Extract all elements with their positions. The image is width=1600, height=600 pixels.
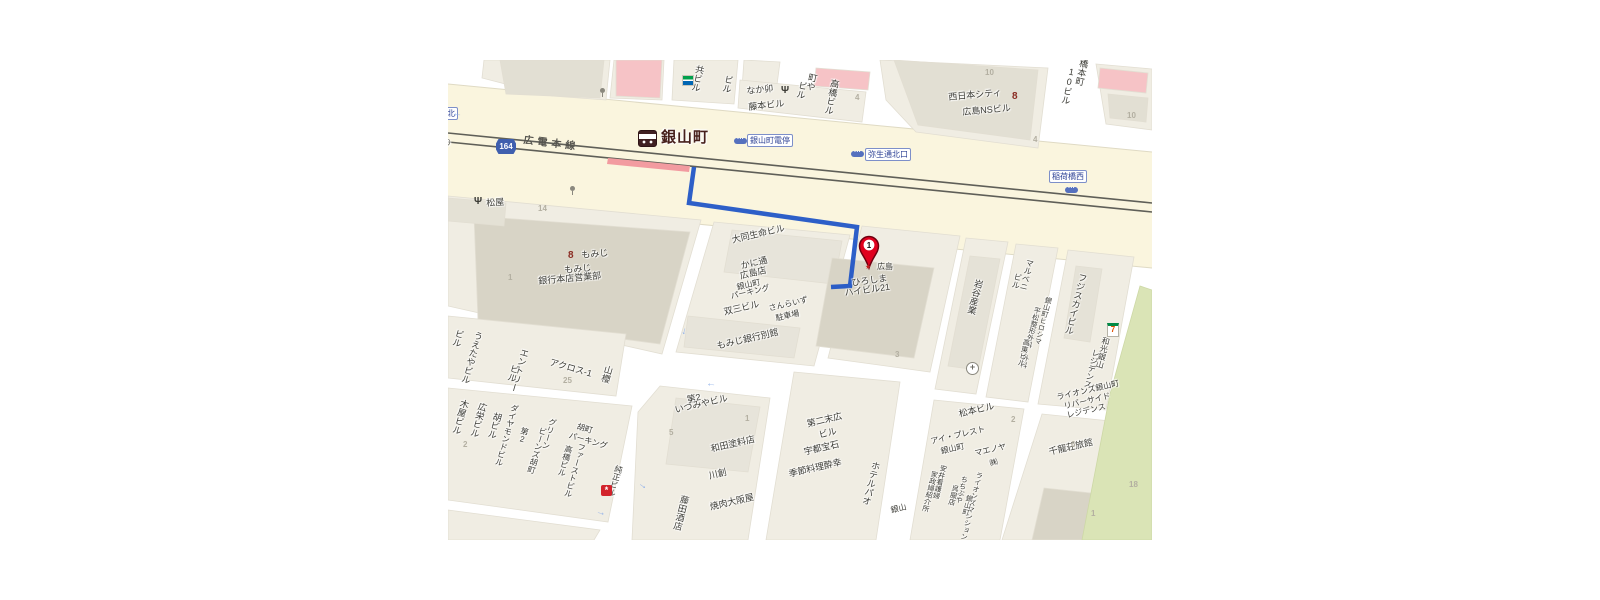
map-label: 164	[496, 139, 516, 154]
restaurant-icon: Ψ	[781, 85, 789, 96]
map-label: 松本ビル	[958, 402, 995, 419]
map-label: もみじ	[581, 249, 609, 261]
hospital-icon: +	[966, 362, 979, 375]
map-label: 広島NSビル	[962, 104, 1011, 118]
map-label: ㈱	[989, 458, 999, 468]
map-label: マエノヤ	[974, 443, 1007, 458]
map-label: 広栄ビル	[468, 401, 487, 438]
station-icon	[638, 130, 657, 147]
signal-icon	[570, 186, 575, 191]
map-label: 岩谷産業	[965, 278, 983, 315]
arrow-icon: →	[595, 506, 608, 519]
map-label: ビル	[450, 328, 464, 348]
map-label: 藤本ビル	[748, 99, 785, 112]
company-icon: ★	[865, 263, 871, 271]
map-label: 松屋	[486, 198, 505, 209]
map-label: 5	[669, 429, 673, 437]
map-label: 1	[1091, 510, 1095, 518]
map-label: 双三ビル	[723, 300, 760, 317]
map-label: 西日本シティ	[948, 88, 1002, 102]
bank-icon: 8	[1012, 91, 1018, 102]
map-label: 3	[895, 351, 899, 359]
map-label: ビル	[818, 427, 838, 440]
map-label: 4	[855, 94, 859, 102]
restaurant-icon: Ψ	[474, 196, 482, 207]
redpoi-icon: *	[601, 485, 612, 496]
tram-icon: ···	[734, 138, 747, 144]
map-label: 山櫻	[599, 364, 613, 384]
map-label: 大同生命ビル	[731, 224, 786, 245]
map-label: 10ビル	[1059, 66, 1076, 105]
map-label: 駐車場	[775, 310, 800, 324]
map-label: 焼肉大阪屋	[709, 493, 755, 512]
bank-icon: 8	[568, 250, 574, 261]
arrow-icon: →	[706, 380, 717, 392]
map-label: 14	[538, 205, 547, 213]
map-label: 10	[985, 69, 994, 77]
map-labels-layer: 共ビルビルなか卯藤本ビル町やビル高橋ビル4西日本シティ広島NSビル104橋本町1…	[448, 60, 1152, 540]
map-label: 木屋ビル	[450, 398, 469, 435]
map-label: 銀山	[890, 503, 907, 515]
seveneleven-icon: 7	[1107, 323, 1119, 337]
page: 1 共ビルビルなか卯藤本ビル町やビル高橋ビル4西日本シティ広島NSビル104橋本…	[0, 0, 1600, 600]
map-label: 季節料理酔幸	[788, 458, 843, 479]
station-name: 銀山町	[661, 130, 709, 146]
map-label: 第2	[516, 426, 529, 445]
map-sign-label: 稲荷橋西	[1049, 170, 1087, 183]
map-label: 1	[508, 274, 512, 282]
arrow-icon: →	[636, 478, 651, 493]
map-label: 川創	[708, 468, 728, 481]
map-label: 2	[1011, 416, 1015, 424]
map-label: なか卯	[746, 84, 774, 96]
map-label: 胡ビル	[486, 411, 503, 440]
map-label: 1	[745, 415, 749, 423]
map-label: 2	[463, 441, 467, 449]
map-label: 25	[563, 377, 572, 385]
map-label: 6	[1071, 441, 1075, 449]
tram-icon: ···	[1065, 187, 1078, 193]
map-label: 高橋ビル	[823, 78, 840, 115]
arrow-icon: →	[678, 325, 691, 338]
familymart-icon	[682, 75, 694, 86]
signal-icon	[600, 88, 605, 93]
arrow-icon: →	[452, 110, 463, 122]
map-label: ビーンズ胡町	[526, 426, 547, 474]
map-label: もみじ銀行別館	[716, 328, 780, 351]
map-label: 10	[1127, 112, 1136, 120]
map-label: うえたやビル	[459, 330, 483, 385]
map-sign-label: 弥生通北口	[865, 148, 911, 161]
map-label: 和田塗料店	[710, 435, 756, 454]
map-label: 宇都宝石	[803, 440, 840, 457]
map-label: ビル	[720, 74, 733, 94]
map-label: 第二末広	[806, 412, 843, 429]
map-label: 銀山町	[940, 443, 965, 457]
map-viewport[interactable]: 1 共ビルビルなか卯藤本ビル町やビル高橋ビル4西日本シティ広島NSビル104橋本…	[448, 60, 1152, 540]
map-label: 通り	[448, 136, 453, 149]
tram-icon: ···	[851, 151, 864, 157]
map-label: 広島	[877, 263, 893, 271]
map-label: 銀行本店営業部	[538, 272, 602, 287]
map-label: 18	[1129, 481, 1138, 489]
map-label: ホテルパオ	[860, 460, 880, 506]
map-label: いづみやビル	[674, 394, 729, 415]
map-label: 広電本線	[523, 136, 580, 153]
map-label: フジスカイビル	[1063, 272, 1087, 335]
map-label: ビル	[794, 80, 807, 100]
map-sign-label: 銀山町電停	[747, 134, 793, 147]
map-label: 藤田酒店	[671, 494, 689, 531]
map-label: 4	[1033, 136, 1037, 144]
